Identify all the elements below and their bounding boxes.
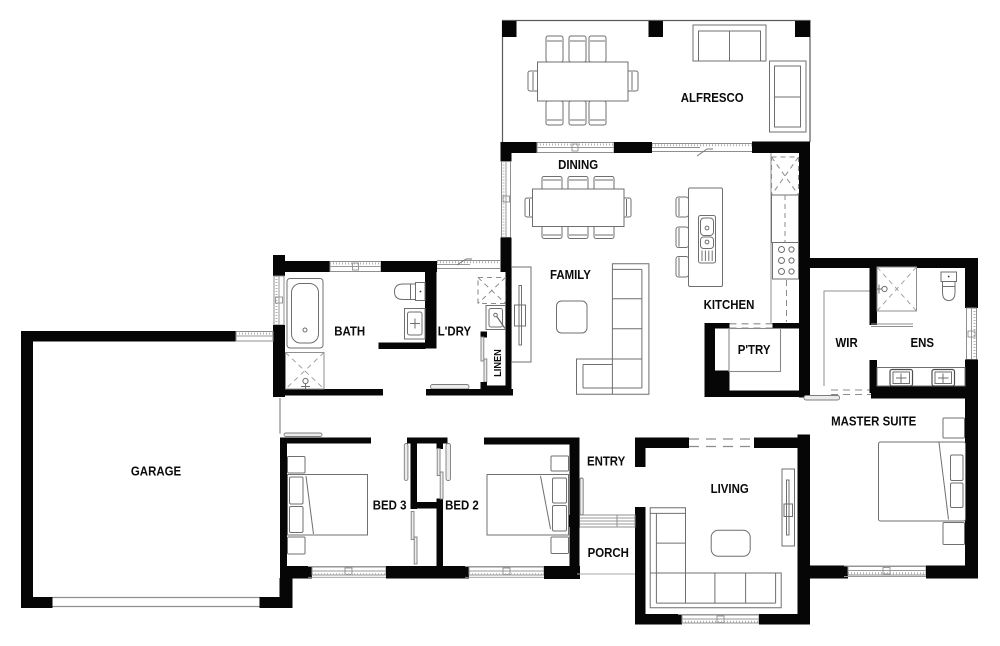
svg-text:GARAGE: GARAGE — [131, 464, 181, 479]
svg-text:LINEN: LINEN — [493, 349, 505, 377]
svg-text:ENS: ENS — [910, 335, 934, 350]
svg-text:DINING: DINING — [558, 157, 598, 172]
svg-text:L'DRY: L'DRY — [438, 324, 471, 339]
svg-text:PORCH: PORCH — [588, 545, 629, 560]
svg-text:LIVING: LIVING — [711, 481, 749, 496]
svg-text:BATH: BATH — [334, 324, 365, 339]
svg-text:ENTRY: ENTRY — [587, 454, 625, 469]
svg-text:FAMILY: FAMILY — [550, 267, 591, 282]
svg-text:ALFRESCO: ALFRESCO — [681, 90, 744, 105]
svg-text:MASTER SUITE: MASTER SUITE — [831, 414, 916, 429]
svg-text:BED 3: BED 3 — [373, 498, 407, 513]
svg-text:KITCHEN: KITCHEN — [704, 297, 755, 312]
svg-text:BED 2: BED 2 — [445, 498, 479, 513]
svg-text:P'TRY: P'TRY — [738, 342, 771, 357]
svg-text:WIR: WIR — [835, 335, 857, 350]
